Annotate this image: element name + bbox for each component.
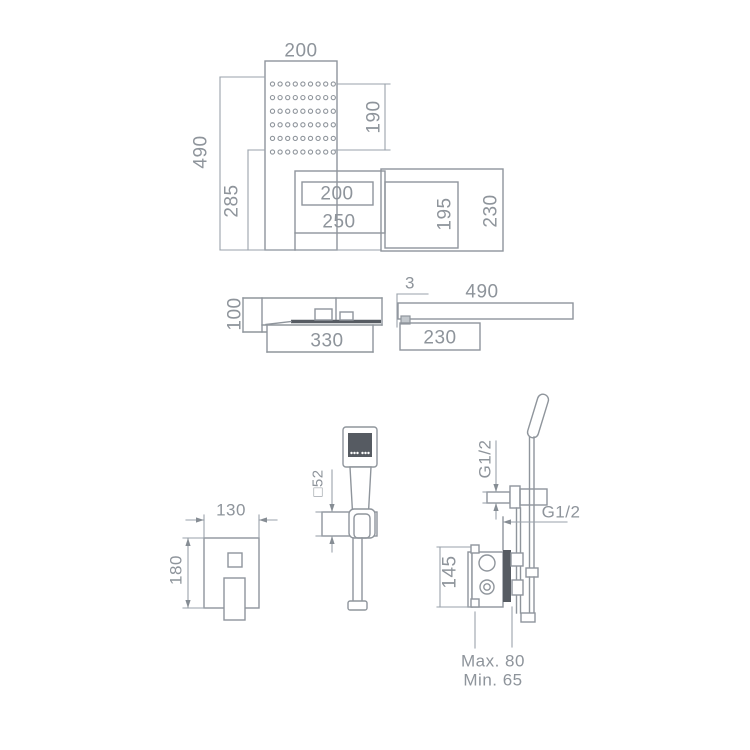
spray-nozzle-grid bbox=[270, 82, 335, 154]
hand-shower-handle bbox=[350, 467, 371, 512]
dim-panel-width: 200 bbox=[284, 41, 317, 62]
dim-spray-field-height: 190 bbox=[364, 100, 385, 133]
panel-slab bbox=[398, 303, 573, 319]
dim-spout-width: 250 bbox=[322, 212, 355, 233]
supply-block-a bbox=[315, 309, 332, 320]
dim-top-thread: G1/2 bbox=[476, 440, 495, 479]
mount-tab-top bbox=[471, 545, 479, 553]
dim-holder-size: □52 bbox=[310, 469, 327, 496]
dim-edge-thickness: 3 bbox=[405, 274, 415, 293]
dim-trim-width: 130 bbox=[216, 501, 246, 520]
mixer-lever bbox=[224, 578, 245, 620]
dim-opening-width: 200 bbox=[320, 184, 353, 205]
supply-elbow bbox=[487, 492, 510, 503]
shower-system-technical-drawing: 200 490 285 190 200 250 195 230 100 330 … bbox=[0, 0, 750, 750]
dim-depth-min: Min. 65 bbox=[463, 671, 522, 690]
dim-depth-max: Max. 80 bbox=[461, 652, 525, 671]
dim-plan-depth: 100 bbox=[225, 297, 246, 330]
dim-plan-length: 330 bbox=[310, 331, 343, 352]
outlet-stub-bottom bbox=[512, 580, 523, 595]
dim-inner-box-height: 195 bbox=[435, 197, 456, 230]
dim-trim-height: 180 bbox=[167, 555, 186, 585]
hose-nut bbox=[526, 568, 538, 577]
panel-plan-view: 100 330 bbox=[225, 297, 383, 352]
outlet-stub-top bbox=[511, 553, 523, 566]
dim-overall-height: 490 bbox=[191, 135, 212, 168]
dim-side-lower-depth: 230 bbox=[423, 328, 456, 349]
holder-flange bbox=[510, 486, 520, 508]
mixer-trim-view: 130 180 bbox=[167, 501, 278, 621]
hand-shower-in-holder bbox=[526, 393, 550, 439]
dim-lower-height: 285 bbox=[222, 184, 243, 217]
hose-elbow bbox=[521, 613, 535, 622]
supply-block-b bbox=[340, 312, 353, 320]
panel-front-view: 200 490 285 190 200 250 195 230 bbox=[191, 41, 504, 252]
dim-valve-height: 145 bbox=[440, 555, 461, 588]
hose-connector bbox=[348, 601, 367, 610]
panel-side-view: 3 490 230 bbox=[397, 274, 573, 351]
hand-shower-view: □52 bbox=[310, 427, 378, 610]
dim-side-length: 490 bbox=[465, 282, 498, 303]
dim-outer-box-height: 230 bbox=[481, 194, 502, 227]
dim-side-thread: G1/2 bbox=[542, 503, 581, 522]
mount-tab-bottom bbox=[471, 599, 479, 607]
wall-plate-edge bbox=[503, 550, 511, 602]
valve-side-view: G1/2 G1/2 145 Max. 80 Min. 65 bbox=[437, 393, 580, 690]
diverter-button bbox=[228, 553, 242, 567]
